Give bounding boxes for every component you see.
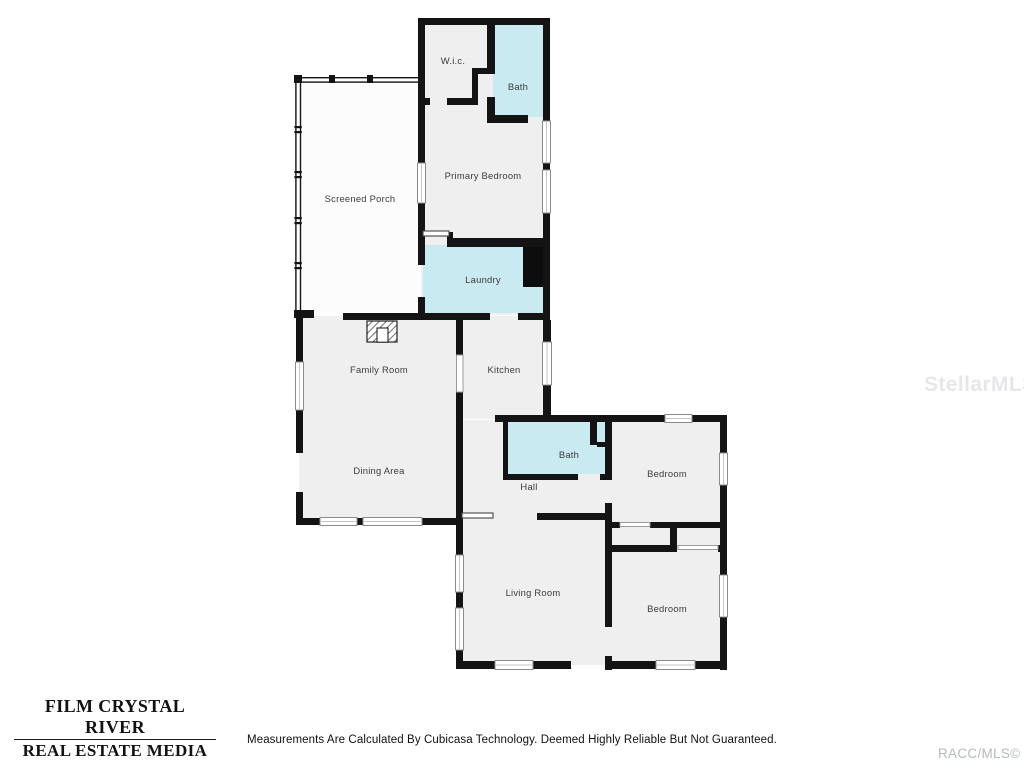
- window: [543, 170, 551, 213]
- window: [495, 661, 533, 670]
- room-label-bath-top: Bath: [508, 81, 528, 92]
- closet-door-leaf: [678, 546, 718, 550]
- window: [456, 608, 464, 650]
- window: [363, 518, 422, 526]
- window: [543, 342, 552, 385]
- mls-credit: RACC/MLS©: [938, 746, 1020, 761]
- window: [456, 555, 464, 592]
- room-label-bath-hall: Bath: [559, 449, 579, 460]
- room-label-dining-area: Dining Area: [353, 465, 405, 476]
- window: [665, 415, 692, 423]
- room-label-primary-bedroom: Primary Bedroom: [445, 170, 522, 181]
- room-label-hall: Hall: [520, 481, 537, 492]
- window: [720, 575, 728, 617]
- room-label-laundry: Laundry: [465, 274, 501, 285]
- fireplace-icon: [367, 321, 397, 342]
- window: [543, 121, 551, 163]
- room-label-bedroom-se: Bedroom: [647, 603, 687, 614]
- disclaimer-text: Measurements Are Calculated By Cubicasa …: [0, 734, 1024, 746]
- room-label-wic: W.i.c.: [441, 55, 465, 66]
- room-label-living-room: Living Room: [506, 587, 561, 598]
- window: [656, 661, 695, 670]
- room-label-kitchen: Kitchen: [487, 364, 520, 375]
- bath-top-floor: [493, 25, 543, 117]
- window: [720, 453, 728, 485]
- floor-plan: Screened Porch W.i.c. Bath Primary Bedro…: [0, 0, 1024, 768]
- room-label-family-room: Family Room: [350, 364, 408, 375]
- window: [418, 163, 426, 203]
- closet-door-leaf: [620, 523, 650, 527]
- door-leaf: [462, 513, 493, 518]
- branding-logo: FILM CRYSTAL RIVER REAL ESTATE MEDIA: [14, 696, 216, 761]
- stellar-mls-watermark: StellarMLS: [924, 373, 1024, 397]
- window: [320, 518, 357, 526]
- door-leaf: [423, 231, 449, 236]
- kitchen-opening: [457, 355, 464, 392]
- room-label-screened-porch: Screened Porch: [325, 193, 396, 204]
- window: [296, 362, 304, 410]
- floor-plan-page: Screened Porch W.i.c. Bath Primary Bedro…: [0, 0, 1024, 768]
- room-label-bedroom-ne: Bedroom: [647, 468, 687, 479]
